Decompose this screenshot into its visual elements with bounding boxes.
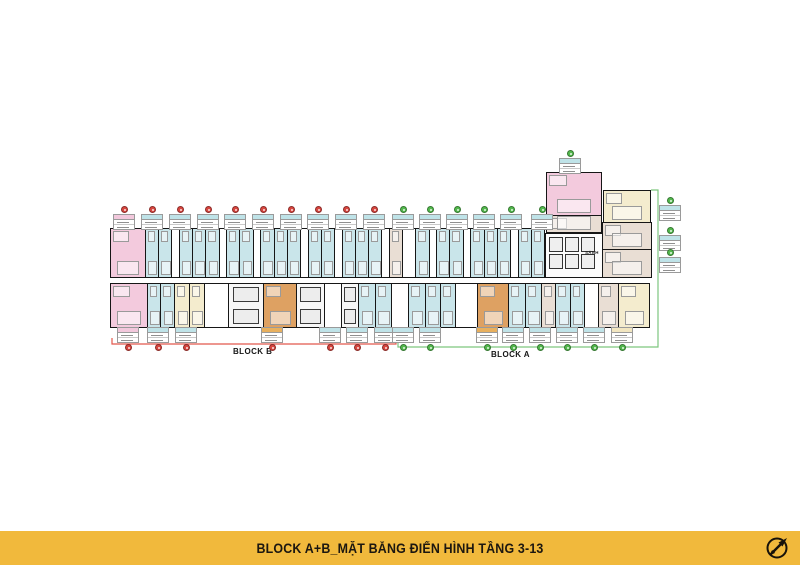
unit-callout xyxy=(318,327,342,352)
plan-sheet: BLOCK B BLOCK A SẢNH BLOCK A+B_MẶT BẰNG … xyxy=(0,0,800,565)
unit-cell xyxy=(228,284,263,327)
marker-dot-icon xyxy=(269,344,276,351)
marker-dot-icon xyxy=(371,206,378,213)
unit-cell xyxy=(296,284,325,327)
unit-callout xyxy=(279,205,303,230)
unit-cell xyxy=(415,229,428,277)
unit-cell xyxy=(341,284,358,327)
marker-dot-icon xyxy=(667,249,674,256)
unit-cell xyxy=(174,284,189,327)
unit-callout xyxy=(140,205,164,230)
callout-table xyxy=(583,327,605,343)
marker-dot-icon xyxy=(177,206,184,213)
unit-cell xyxy=(484,229,497,277)
unit-cell xyxy=(389,229,402,277)
unit-cell xyxy=(287,229,300,277)
marker-dot-icon xyxy=(667,197,674,204)
unit-cell xyxy=(308,229,321,277)
callout-table xyxy=(307,214,329,230)
unit-callout xyxy=(196,205,220,230)
unit-cell xyxy=(239,229,252,277)
marker-dot-icon xyxy=(427,344,434,351)
unit-cell xyxy=(508,284,525,327)
unit-cell xyxy=(179,229,192,277)
unit-cell xyxy=(391,284,408,327)
unit-cell xyxy=(436,229,449,277)
marker-dot-icon xyxy=(121,206,128,213)
unit-callout xyxy=(445,205,469,230)
unit-cell xyxy=(334,229,342,277)
unit-cell xyxy=(598,284,619,327)
unit-cell xyxy=(321,229,334,277)
marker-dot-icon xyxy=(125,344,132,351)
unit-cell xyxy=(355,229,368,277)
callout-table xyxy=(113,214,135,230)
callout-table xyxy=(659,257,681,273)
sheet-title: BLOCK A+B_MẶT BẰNG ĐIỂN HÌNH TẦNG 3-13 xyxy=(256,541,543,556)
footer-bar: BLOCK A+B_MẶT BẰNG ĐIỂN HÌNH TẦNG 3-13 xyxy=(0,531,800,565)
unit-callout xyxy=(223,205,247,230)
unit-row-bottom xyxy=(110,283,650,328)
unit-callout xyxy=(362,205,386,230)
marker-dot-icon xyxy=(619,344,626,351)
unit-callout xyxy=(146,327,170,352)
unit-cell xyxy=(408,284,425,327)
unit-cell xyxy=(518,229,531,277)
marker-dot-icon xyxy=(315,206,322,213)
unit-cell xyxy=(541,284,555,327)
unit-callout xyxy=(499,205,523,230)
unit-callout xyxy=(558,149,582,174)
compass-icon xyxy=(764,535,790,561)
callout-table xyxy=(473,214,495,230)
unit-callout xyxy=(555,327,579,352)
callout-table xyxy=(446,214,468,230)
callout-table xyxy=(346,327,368,343)
unit-cell xyxy=(570,284,584,327)
marker-dot-icon xyxy=(537,344,544,351)
callout-table xyxy=(141,214,163,230)
unit-callout xyxy=(391,205,415,230)
unit-callout xyxy=(475,327,499,352)
unit-cell xyxy=(555,284,570,327)
callout-table xyxy=(392,214,414,230)
callout-table xyxy=(611,327,633,343)
unit-cell xyxy=(260,229,273,277)
unit-callout xyxy=(418,327,442,352)
callout-table xyxy=(419,327,441,343)
unit-cell xyxy=(192,229,205,277)
unit-cell xyxy=(219,229,227,277)
unit-cell xyxy=(381,229,389,277)
unit-cell xyxy=(358,284,375,327)
elevator-cell xyxy=(565,254,579,269)
unit-callout xyxy=(306,205,330,230)
unit-cell xyxy=(204,284,229,327)
callout-table xyxy=(117,327,139,343)
unit-callout xyxy=(345,327,369,352)
unit-cell xyxy=(425,284,440,327)
unit-callout xyxy=(610,327,634,352)
unit-callout xyxy=(260,327,284,352)
unit-cell xyxy=(342,229,355,277)
marker-dot-icon xyxy=(564,344,571,351)
callout-table xyxy=(476,327,498,343)
marker-dot-icon xyxy=(149,206,156,213)
marker-dot-icon xyxy=(484,344,491,351)
unit-cell xyxy=(497,229,510,277)
marker-dot-icon xyxy=(508,206,515,213)
elevator-cell xyxy=(581,254,595,269)
unit-cell xyxy=(300,229,308,277)
callout-table xyxy=(224,214,246,230)
marker-dot-icon xyxy=(539,206,546,213)
unit-cell xyxy=(375,284,392,327)
unit-cell xyxy=(584,284,598,327)
callout-table xyxy=(197,214,219,230)
marker-dot-icon xyxy=(288,206,295,213)
elevator-core: SẢNH xyxy=(545,233,603,278)
marker-dot-icon xyxy=(183,344,190,351)
callout-table xyxy=(419,214,441,230)
unit-cell xyxy=(145,229,158,277)
unit-cell xyxy=(226,229,239,277)
unit-cell xyxy=(618,284,649,327)
unit-cell xyxy=(455,284,478,327)
unit-cell xyxy=(111,284,147,327)
unit-cell xyxy=(274,229,287,277)
marker-dot-icon xyxy=(427,206,434,213)
callout-table xyxy=(556,327,578,343)
unit-callout xyxy=(334,205,358,230)
marker-dot-icon xyxy=(232,206,239,213)
unit-cell xyxy=(477,284,508,327)
floor-plan: BLOCK B BLOCK A SẢNH xyxy=(0,0,800,565)
unit-cell xyxy=(510,229,518,277)
marker-dot-icon xyxy=(510,344,517,351)
marker-dot-icon xyxy=(382,344,389,351)
marker-dot-icon xyxy=(260,206,267,213)
unit-callout xyxy=(116,327,140,352)
callout-table xyxy=(147,327,169,343)
callout-table xyxy=(280,214,302,230)
callout-table xyxy=(335,214,357,230)
marker-dot-icon xyxy=(205,206,212,213)
unit-block xyxy=(603,190,651,223)
unit-cell xyxy=(429,229,437,277)
callout-table xyxy=(659,205,681,221)
unit-callout xyxy=(418,205,442,230)
marker-dot-icon xyxy=(354,344,361,351)
unit-cell xyxy=(402,229,415,277)
unit-row-top xyxy=(110,228,545,278)
unit-cell xyxy=(158,229,171,277)
unit-cell xyxy=(147,284,161,327)
callout-table xyxy=(261,327,283,343)
unit-cell xyxy=(463,229,471,277)
unit-cell xyxy=(449,229,462,277)
unit-callout xyxy=(530,205,554,230)
unit-callout xyxy=(391,327,415,352)
unit-block xyxy=(546,215,602,233)
marker-dot-icon xyxy=(567,150,574,157)
callout-table xyxy=(502,327,524,343)
unit-cell xyxy=(263,284,296,327)
marker-dot-icon xyxy=(454,206,461,213)
callout-table xyxy=(531,214,553,230)
unit-callout xyxy=(528,327,552,352)
lobby-label: SẢNH xyxy=(585,250,599,255)
callout-table xyxy=(319,327,341,343)
unit-callout xyxy=(168,205,192,230)
unit-callout xyxy=(658,248,682,273)
unit-cell xyxy=(160,284,174,327)
unit-cell xyxy=(324,284,341,327)
callout-table xyxy=(529,327,551,343)
unit-cell xyxy=(253,229,261,277)
unit-callout xyxy=(472,205,496,230)
unit-cell xyxy=(111,229,145,277)
callout-table xyxy=(175,327,197,343)
callout-table xyxy=(559,158,581,174)
unit-cell xyxy=(189,284,204,327)
elevator-cell xyxy=(549,237,563,252)
marker-dot-icon xyxy=(400,206,407,213)
unit-cell xyxy=(205,229,218,277)
marker-dot-icon xyxy=(327,344,334,351)
unit-cell xyxy=(531,229,544,277)
marker-dot-icon xyxy=(343,206,350,213)
unit-block xyxy=(602,222,652,250)
unit-cell xyxy=(171,229,179,277)
unit-block xyxy=(602,249,652,278)
callout-table xyxy=(169,214,191,230)
unit-callout xyxy=(251,205,275,230)
unit-callout xyxy=(658,196,682,221)
callout-table xyxy=(392,327,414,343)
unit-callout xyxy=(582,327,606,352)
unit-callout xyxy=(112,205,136,230)
elevator-cell xyxy=(549,254,563,269)
marker-dot-icon xyxy=(667,227,674,234)
unit-cell xyxy=(368,229,381,277)
unit-callout xyxy=(174,327,198,352)
unit-block xyxy=(546,172,602,216)
marker-dot-icon xyxy=(481,206,488,213)
unit-cell xyxy=(440,284,455,327)
marker-dot-icon xyxy=(400,344,407,351)
unit-cell xyxy=(525,284,542,327)
unit-cell xyxy=(470,229,483,277)
callout-table xyxy=(252,214,274,230)
unit-callout xyxy=(501,327,525,352)
marker-dot-icon xyxy=(591,344,598,351)
callout-table xyxy=(363,214,385,230)
marker-dot-icon xyxy=(155,344,162,351)
callout-table xyxy=(500,214,522,230)
elevator-cell xyxy=(565,237,579,252)
